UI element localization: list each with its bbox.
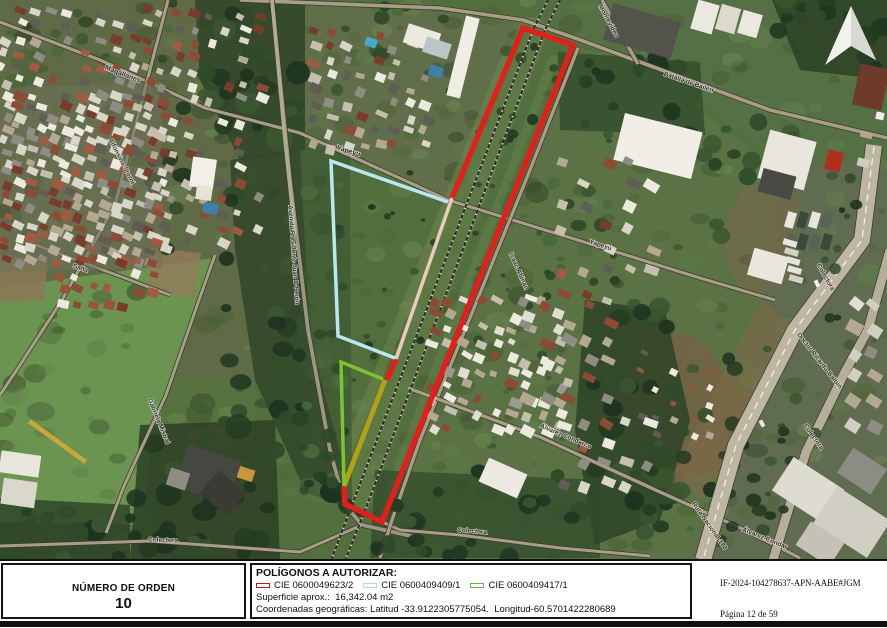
svg-text:Colectora: Colectora	[148, 536, 179, 544]
